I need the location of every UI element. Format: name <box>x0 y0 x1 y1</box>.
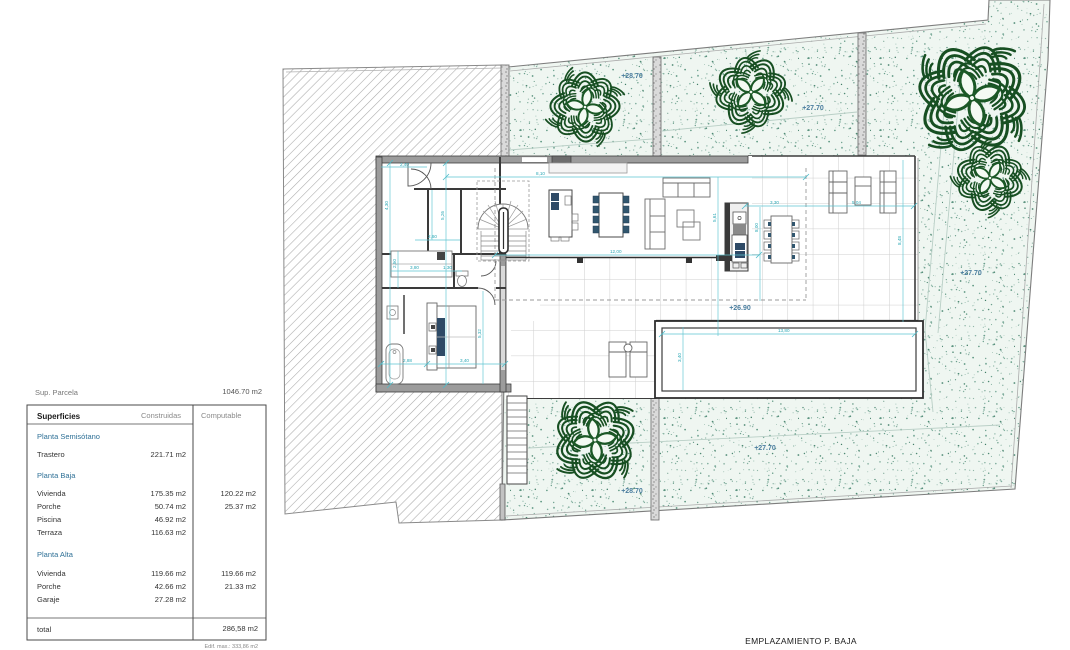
svg-text:+27.70: +27.70 <box>960 270 982 277</box>
svg-text:8,48: 8,48 <box>897 236 902 245</box>
svg-text:1,30: 1,30 <box>443 265 452 270</box>
svg-text:Porche: Porche <box>37 502 61 511</box>
svg-text:Terraza: Terraza <box>37 528 63 537</box>
svg-text:1046.70 m2: 1046.70 m2 <box>222 387 262 396</box>
svg-text:3,40: 3,40 <box>460 358 469 363</box>
svg-text:Trastero: Trastero <box>37 450 65 459</box>
svg-text:5,32: 5,32 <box>477 329 482 338</box>
svg-text:2,88: 2,88 <box>403 358 412 363</box>
svg-text:Planta Semisótano: Planta Semisótano <box>37 432 100 441</box>
svg-text:Superficies: Superficies <box>37 412 81 421</box>
svg-text:EMPLAZAMIENTO P. BAJA: EMPLAZAMIENTO P. BAJA <box>745 636 857 646</box>
svg-text:Vivienda: Vivienda <box>37 489 66 498</box>
svg-text:5,61: 5,61 <box>712 213 717 222</box>
svg-text:3,40: 3,40 <box>677 353 682 362</box>
svg-text:120.22 m2: 120.22 m2 <box>221 489 256 498</box>
svg-text:Vivienda: Vivienda <box>37 569 66 578</box>
svg-text:116.63 m2: 116.63 m2 <box>151 528 186 537</box>
svg-text:2,60: 2,60 <box>428 234 437 239</box>
svg-text:Garaje: Garaje <box>37 595 60 604</box>
svg-text:Planta Baja: Planta Baja <box>37 471 76 480</box>
svg-text:13,80: 13,80 <box>778 328 790 333</box>
svg-text:Porche: Porche <box>37 582 61 591</box>
svg-text:+28.70: +28.70 <box>621 73 643 80</box>
svg-text:46.92 m2: 46.92 m2 <box>155 515 186 524</box>
svg-text:+27.70: +27.70 <box>802 105 824 112</box>
svg-text:42.66 m2: 42.66 m2 <box>155 582 186 591</box>
svg-text:Sup. Parcela: Sup. Parcela <box>35 388 79 397</box>
svg-text:25.37 m2: 25.37 m2 <box>225 502 256 511</box>
svg-text:4,30: 4,30 <box>384 201 389 210</box>
svg-text:Piscina: Piscina <box>37 515 62 524</box>
svg-text:5,26: 5,26 <box>440 211 445 220</box>
svg-text:Computable: Computable <box>201 411 241 420</box>
svg-text:total: total <box>37 625 52 634</box>
svg-text:12,00: 12,00 <box>610 249 622 254</box>
svg-text:119.66 m2: 119.66 m2 <box>151 569 186 578</box>
svg-text:Planta Alta: Planta Alta <box>37 550 74 559</box>
svg-text:221.71 m2: 221.71 m2 <box>151 450 186 459</box>
svg-text:Construidas: Construidas <box>141 411 181 420</box>
svg-text:+28.70: +28.70 <box>621 488 643 495</box>
svg-text:2,40: 2,40 <box>400 162 409 167</box>
svg-text:3,30: 3,30 <box>770 200 779 205</box>
svg-text:5,04: 5,04 <box>852 200 861 205</box>
svg-text:+27.70: +27.70 <box>754 445 776 452</box>
svg-text:21.33 m2: 21.33 m2 <box>225 582 256 591</box>
svg-text:3,80: 3,80 <box>410 265 419 270</box>
svg-text:50.74 m2: 50.74 m2 <box>155 502 186 511</box>
svg-text:119.66 m2: 119.66 m2 <box>221 569 256 578</box>
svg-text:8,10: 8,10 <box>536 171 545 176</box>
svg-text:27.28 m2: 27.28 m2 <box>155 595 186 604</box>
svg-text:8,00: 8,00 <box>754 223 759 232</box>
svg-text:286,58 m2: 286,58 m2 <box>223 624 258 633</box>
svg-text:Edif. max.: 333,86 m2: Edif. max.: 333,86 m2 <box>205 644 259 650</box>
svg-text:+26.90: +26.90 <box>729 305 751 312</box>
svg-text:175.35 m2: 175.35 m2 <box>151 489 186 498</box>
svg-text:2,50: 2,50 <box>392 259 397 268</box>
